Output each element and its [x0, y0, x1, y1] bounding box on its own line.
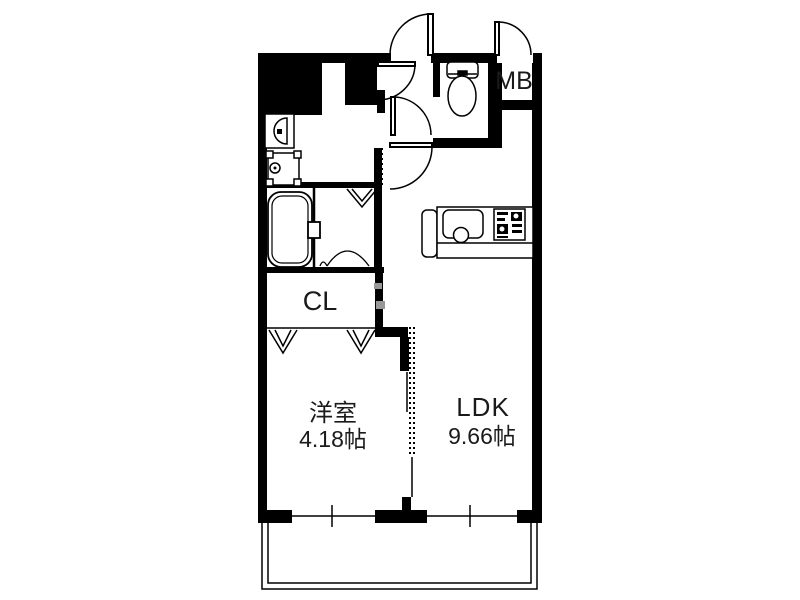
floor-plan-page: MB CL 洋室 4.18帖 LDK 9.66帖: [0, 0, 800, 600]
gray-mark-1: [374, 283, 382, 289]
ldk-door-leaf: [390, 143, 432, 147]
wall-bath-right: [374, 148, 382, 272]
wall-bottom-right: [517, 510, 542, 523]
washbasin-drain: [277, 129, 282, 134]
kitchen-counter: [422, 207, 533, 258]
wall-mass-a: [267, 63, 322, 115]
wall-toilet-left: [433, 63, 440, 97]
bathtub-inner: [272, 196, 308, 263]
bathtub-faucet: [308, 222, 320, 238]
wall-closet-corner: [375, 327, 408, 337]
stove-detail-4: [512, 230, 522, 233]
stove-detail-1: [497, 212, 508, 215]
wall-partition-bottom-stub: [402, 497, 411, 517]
wall-top-right: [533, 53, 542, 63]
counter-end-panel: [422, 210, 437, 257]
western-room-name: 洋室: [309, 400, 357, 427]
wall-mb-bottom: [497, 100, 532, 110]
meter-box-label: MB: [495, 67, 533, 95]
washing-machine-pan-icon: [266, 151, 301, 186]
wall-hall-stub: [377, 90, 385, 113]
wall-bottom-left: [258, 510, 292, 523]
pan-corner-1: [266, 151, 273, 158]
mb-door-leaf: [495, 22, 499, 55]
wall-mass-b: [345, 63, 377, 105]
ldk-name: LDK: [456, 392, 510, 422]
western-room-size: 4.18帖: [299, 426, 367, 452]
pan-corner-3: [266, 179, 273, 186]
stove-detail-2: [497, 218, 505, 221]
toilet-bowl: [448, 76, 476, 116]
closet-label: CL: [303, 286, 338, 316]
stove-burner-dot-2: [500, 227, 505, 232]
gray-mark-2: [376, 301, 385, 309]
wall-partition-top-stub: [400, 337, 409, 371]
toilet-door-leaf: [391, 97, 395, 135]
pan-drain-center: [274, 167, 277, 170]
ldk-size: 9.66帖: [448, 423, 516, 449]
sink-faucet: [454, 228, 469, 243]
floor-plan: MB CL 洋室 4.18帖 LDK 9.66帖: [0, 0, 800, 600]
toilet-flush-button: [458, 71, 467, 75]
pan-corner-2: [294, 151, 301, 158]
washbasin-icon: [265, 114, 294, 148]
washroom-door-leaf: [378, 62, 415, 66]
stove-burner-dot-1: [514, 214, 519, 219]
kitchen-sink-icon: [443, 210, 483, 243]
stove-detail-3: [512, 224, 522, 227]
wall-right: [532, 63, 542, 517]
stove-detail-5: [497, 236, 508, 238]
pan-corner-4: [294, 179, 301, 186]
stove-icon: [494, 209, 525, 240]
wall-top-left: [258, 53, 391, 63]
toilet-icon: [447, 62, 478, 116]
wall-bottom-center: [375, 510, 427, 523]
entrance-door-leaf: [428, 14, 433, 55]
wall-closet-right: [375, 272, 383, 327]
